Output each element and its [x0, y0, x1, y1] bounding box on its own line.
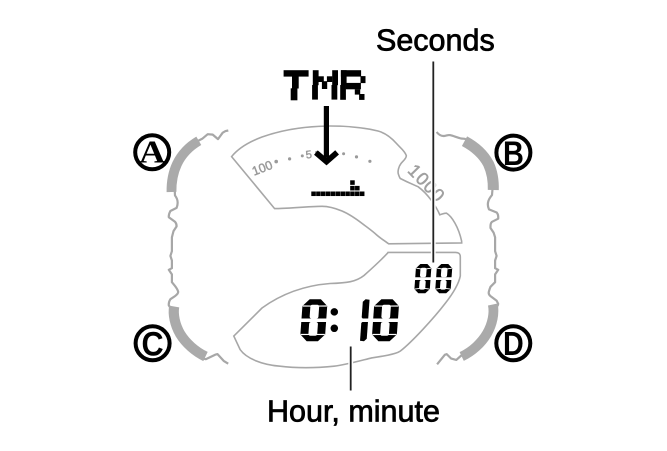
svg-text:Seconds: Seconds: [376, 23, 495, 57]
svg-text:A: A: [139, 135, 165, 170]
svg-text:Hour, minute: Hour, minute: [267, 395, 440, 429]
svg-text:5: 5: [305, 149, 313, 162]
svg-text:100: 100: [250, 158, 275, 179]
svg-text:D: D: [503, 325, 524, 362]
svg-text:C: C: [142, 325, 164, 363]
svg-text:B: B: [503, 134, 524, 173]
